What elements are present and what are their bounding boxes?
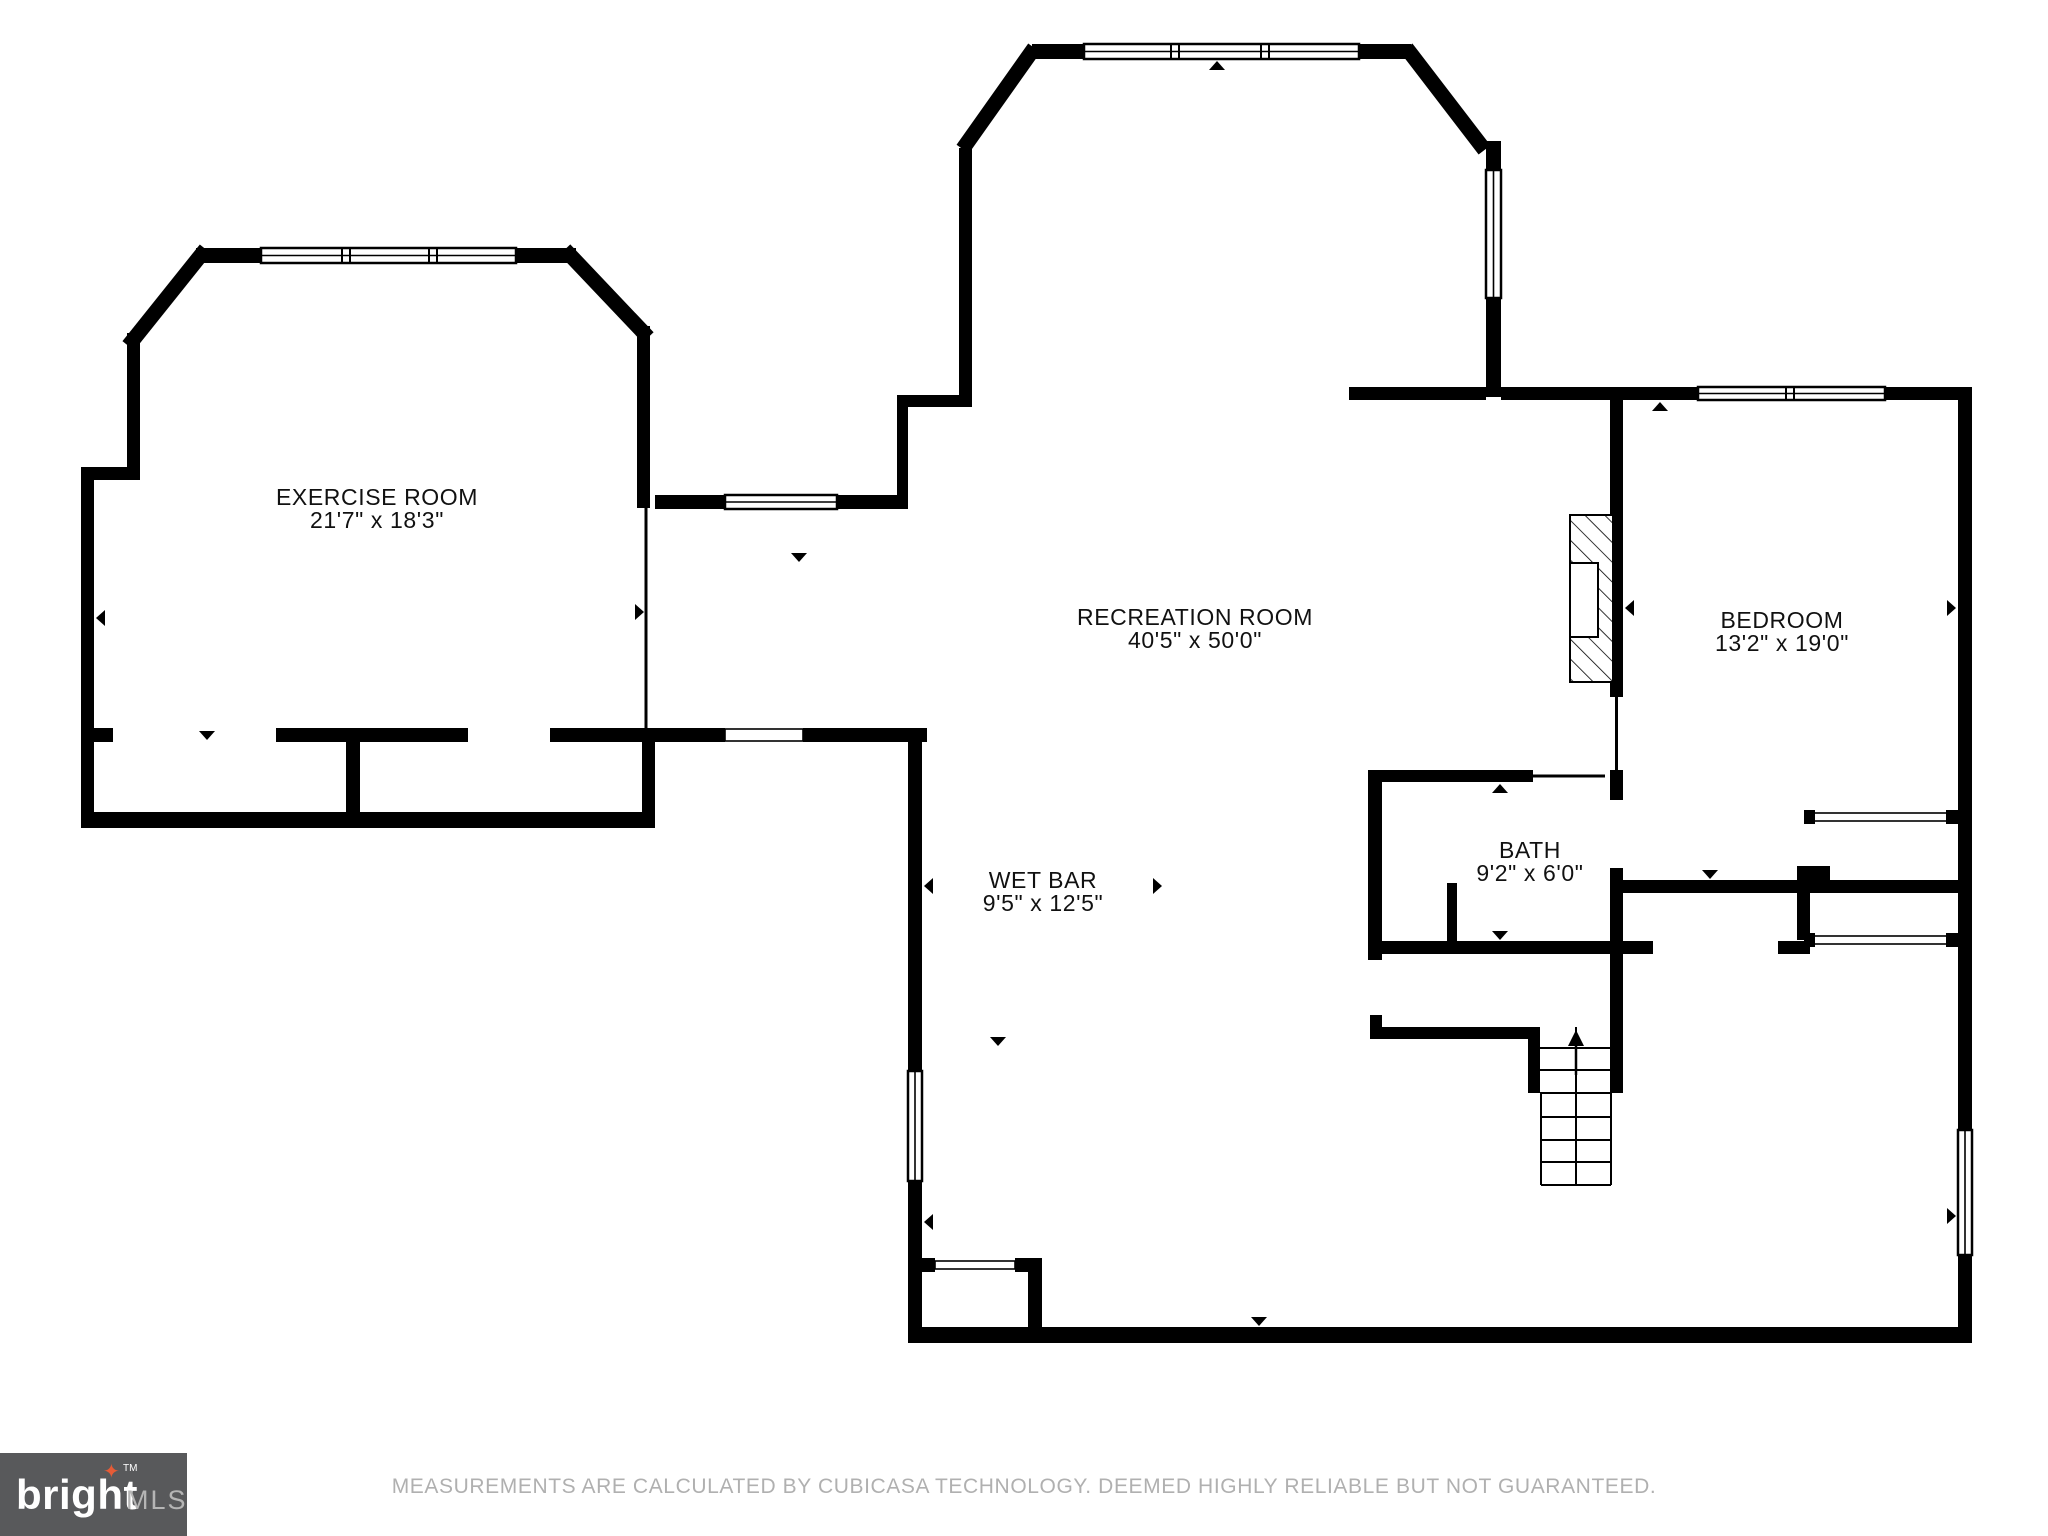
door-marker-icon — [1652, 402, 1668, 411]
window — [725, 495, 837, 509]
door-marker-icon — [1492, 784, 1508, 793]
window — [1486, 170, 1501, 298]
door-marker-icon — [791, 553, 807, 562]
window — [1698, 387, 1885, 400]
door-marker-icon — [199, 731, 215, 740]
wall-segment — [642, 742, 655, 828]
wall-segment — [1411, 54, 1480, 144]
wall-segment — [1501, 387, 1698, 400]
trademark-symbol: TM — [123, 1463, 137, 1474]
wall-segment — [959, 148, 972, 407]
wall-segment — [81, 467, 94, 828]
floorplan-canvas: EXERCISE ROOM 21'7" x 18'3" RECREATION R… — [0, 0, 2048, 1536]
measure-arrow-icon — [1209, 61, 1225, 70]
wall-segment — [1528, 1027, 1540, 1093]
door-opening — [935, 1261, 1015, 1269]
wall-segment — [1370, 1027, 1540, 1039]
wall-segment — [1885, 387, 1966, 400]
wall-segment — [915, 1258, 935, 1272]
wall-segment — [655, 495, 725, 509]
wall-segment — [1447, 883, 1457, 941]
window — [1958, 1130, 1972, 1255]
wall-segment — [1486, 298, 1501, 397]
wall-segment — [550, 728, 725, 742]
room-dims-bath: 9'2" x 6'0" — [1476, 860, 1583, 886]
wall-segment — [897, 407, 908, 508]
wall-segment — [133, 255, 201, 340]
measure-arrow-icon — [635, 604, 644, 620]
recreation-room-walls — [959, 44, 1501, 407]
disclaimer-text: MEASUREMENTS ARE CALCULATED BY CUBICASA … — [0, 1475, 2048, 1499]
wall-segment — [1370, 1015, 1382, 1029]
room-dims-recreation: 40'5" x 50'0" — [1128, 627, 1262, 653]
measure-arrow-icon — [924, 878, 933, 894]
wall-segment — [637, 326, 650, 508]
door-opening — [725, 729, 803, 741]
wall-segment — [1958, 1255, 1972, 1343]
measure-arrow-icon — [924, 1214, 933, 1230]
room-dims-exercise: 21'7" x 18'3" — [310, 507, 444, 533]
measure-arrow-icon — [1251, 1317, 1267, 1326]
wall-segment — [1486, 141, 1501, 170]
wall-segment — [1368, 770, 1382, 960]
measure-arrow-icon — [1625, 600, 1634, 616]
door-marker-icon — [1492, 931, 1508, 940]
wall-segment — [127, 333, 140, 480]
wetbar-walls — [908, 740, 1972, 1343]
wall-segment — [1032, 44, 1084, 59]
measure-arrow-icon — [96, 610, 105, 626]
corridor-walls — [655, 395, 972, 509]
wall-segment — [1349, 387, 1486, 400]
measure-arrow-icon — [1947, 1208, 1956, 1224]
wall-segment — [1370, 941, 1653, 954]
stair-direction-arrow-icon — [1568, 1030, 1584, 1075]
wall-segment — [908, 1327, 1972, 1343]
wall-segment — [1368, 770, 1533, 782]
measure-arrow-icon — [1947, 600, 1956, 616]
bath-walls — [1368, 770, 1810, 960]
window — [1084, 44, 1359, 59]
door-marker-icon — [1702, 870, 1718, 879]
measure-arrow-icon — [1153, 878, 1162, 894]
wall-segment — [81, 812, 655, 828]
wall-segment — [1958, 387, 1972, 1130]
staircase-lower — [1370, 1015, 1611, 1185]
room-dims-bedroom: 13'2" x 19'0" — [1715, 630, 1849, 656]
wall-segment — [803, 728, 927, 742]
wall-segment — [1797, 880, 1810, 940]
wall-segment — [1610, 770, 1623, 800]
room-dims-wetbar: 9'5" x 12'5" — [983, 890, 1104, 916]
wall-segment — [570, 255, 643, 332]
wall-segment — [1797, 866, 1830, 880]
window — [261, 248, 516, 263]
wall-segment — [1778, 941, 1810, 954]
measure-arrow-icon — [990, 1037, 1006, 1046]
staircase-upper — [1570, 515, 1613, 682]
wall-segment — [967, 54, 1030, 143]
wall-segment — [276, 728, 468, 742]
wall-segment — [1610, 868, 1623, 1093]
wall-segment — [908, 740, 922, 1071]
window — [908, 1071, 922, 1181]
wall-segment — [81, 728, 113, 742]
wall-segment — [1028, 1258, 1042, 1327]
wall-segment — [346, 742, 360, 812]
